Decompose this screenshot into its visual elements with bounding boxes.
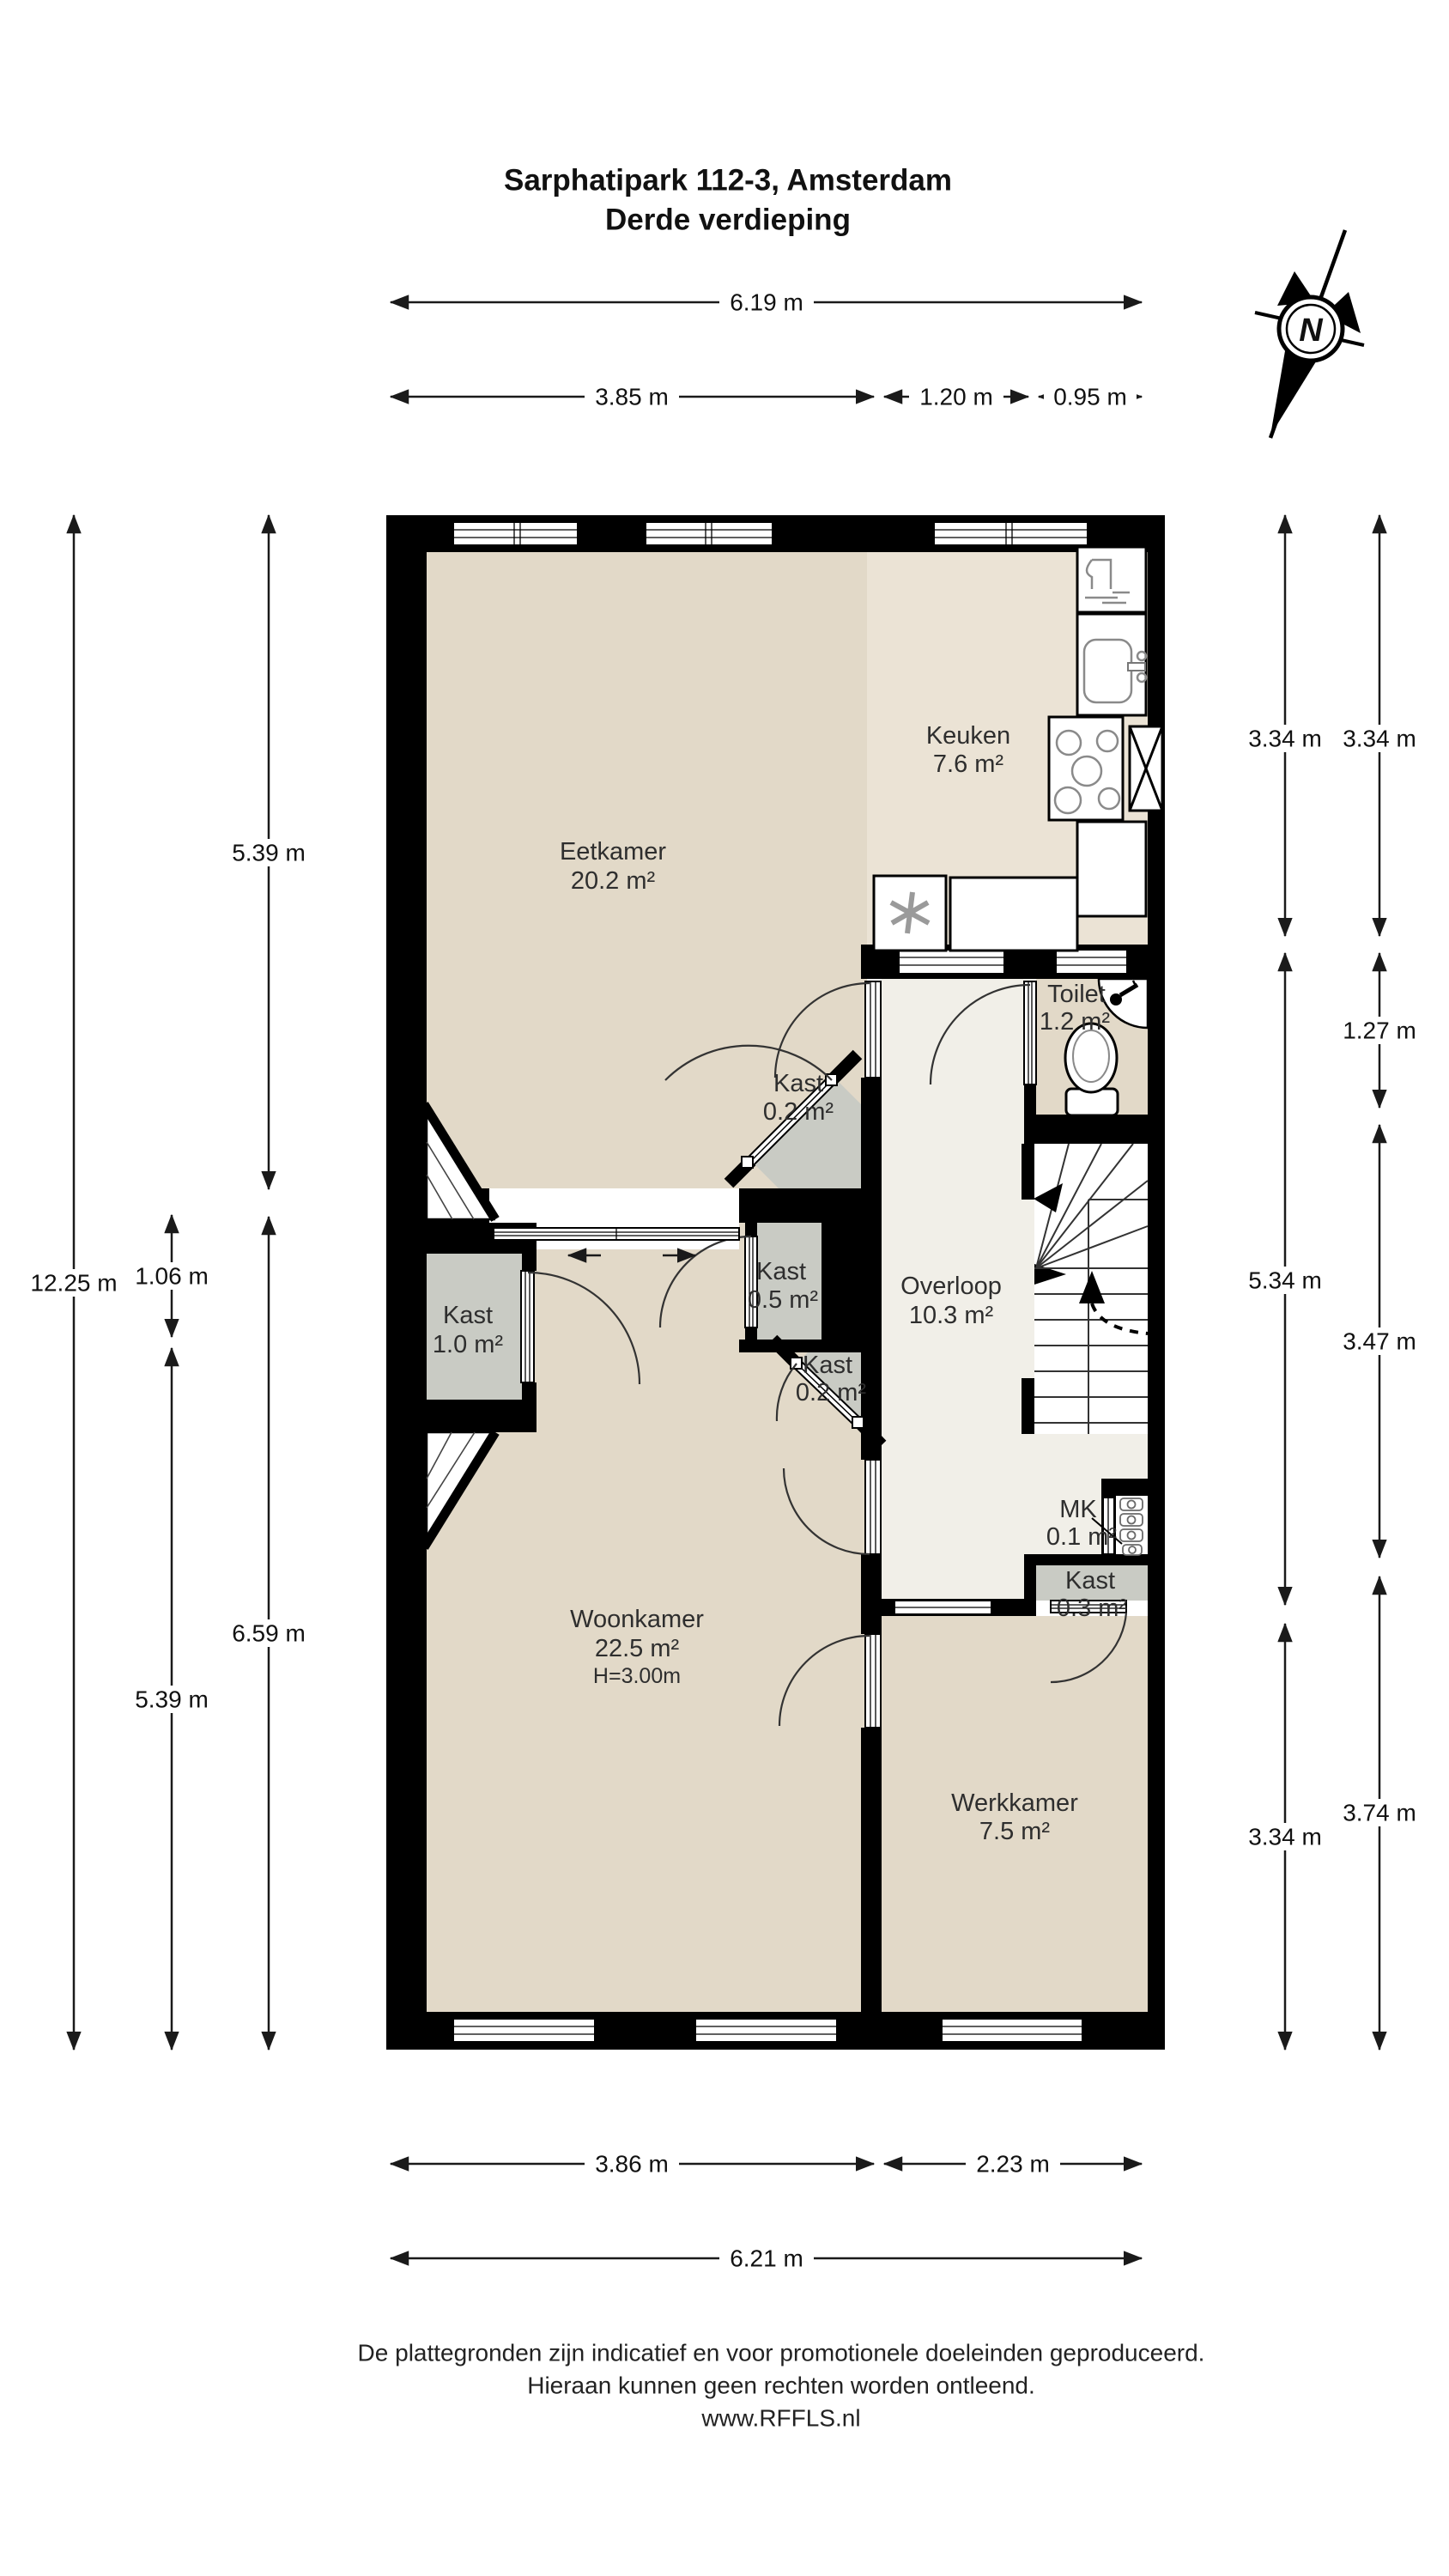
label-woonkamer-area: 22.5 m² (595, 1635, 680, 1662)
boiler-icon (1130, 726, 1162, 811)
svg-text:6.19 m: 6.19 m (730, 289, 803, 316)
svg-text:1.06 m: 1.06 m (135, 1263, 209, 1290)
footer-line-1: De plattegronden zijn indicatief en voor… (358, 2340, 1205, 2366)
label-toilet-area: 1.2 m² (1040, 1008, 1111, 1036)
label-overloop-area: 10.3 m² (909, 1302, 994, 1329)
svg-text:0.95 m: 0.95 m (1053, 384, 1127, 410)
window-bottom-woonkamer-2 (695, 2019, 837, 2042)
window-top-eetkamer-2 (646, 522, 773, 545)
label-woonkamer: Woonkamer (570, 1606, 704, 1633)
svg-text:2.23 m: 2.23 m (976, 2151, 1050, 2178)
window-toilet-transom (1056, 950, 1127, 974)
title-address: Sarphatipark 112-3, Amsterdam (504, 164, 952, 197)
svg-text:12.25 m: 12.25 m (30, 1270, 117, 1297)
label-kast-midden-area: 0.5 m² (748, 1286, 819, 1314)
footer-line-2: Hieraan kunnen geen rechten worden ontle… (527, 2372, 1035, 2399)
svg-text:6.59 m: 6.59 m (232, 1620, 306, 1647)
svg-text:3.86 m: 3.86 m (595, 2151, 669, 2178)
label-kast-klein-area: 0.3 m² (1057, 1595, 1128, 1622)
label-kast-klein: Kast (1065, 1567, 1115, 1595)
label-werkkamer-area: 7.5 m² (979, 1818, 1051, 1845)
label-woonkamer-height: H=3.00m (593, 1664, 681, 1688)
label-toilet: Toilet (1047, 981, 1106, 1008)
washer-fan-icon (874, 876, 946, 951)
floorplan-canvas: Sarphatipark 112-3, Amsterdam Derde verd… (0, 0, 1449, 2576)
compass-n-label: N (1299, 313, 1324, 349)
window-top-keuken (934, 522, 1088, 545)
window-werkkamer-interior (894, 1601, 991, 1614)
svg-text:3.34 m: 3.34 m (1248, 726, 1322, 752)
label-kast-onder-area: 0.2 m² (796, 1379, 867, 1406)
svg-text:1.27 m: 1.27 m (1343, 1018, 1416, 1044)
label-eetkamer-area: 20.2 m² (571, 867, 656, 895)
svg-text:1.20 m: 1.20 m (919, 384, 993, 410)
label-overloop: Overloop (900, 1273, 1002, 1300)
window-bottom-werkkamer (942, 2019, 1082, 2042)
label-werkkamer: Werkkamer (951, 1789, 1078, 1817)
window-bottom-woonkamer-1 (453, 2019, 595, 2042)
label-kast-links-area: 1.0 m² (433, 1331, 504, 1358)
label-kast-boven-area: 0.2 m² (763, 1098, 834, 1126)
dishwasher-icon (1077, 547, 1146, 612)
label-kast-boven: Kast (773, 1070, 823, 1097)
label-kast-midden: Kast (756, 1258, 806, 1285)
sink-icon (1077, 614, 1146, 715)
kitchen-counter (950, 878, 1077, 951)
svg-text:5.39 m: 5.39 m (135, 1686, 209, 1713)
label-meterkast-area: 0.1 m² (1046, 1523, 1118, 1551)
label-eetkamer: Eetkamer (560, 838, 666, 866)
svg-text:3.34 m: 3.34 m (1343, 726, 1416, 752)
label-meterkast: MK (1059, 1496, 1097, 1523)
svg-text:3.85 m: 3.85 m (595, 384, 669, 410)
label-keuken: Keuken (926, 722, 1010, 750)
toilet-icon (1065, 1024, 1118, 1115)
kitchen-unit (1077, 822, 1146, 916)
svg-text:3.34 m: 3.34 m (1248, 1824, 1322, 1850)
svg-text:6.21 m: 6.21 m (730, 2245, 803, 2272)
stove-icon (1049, 717, 1123, 820)
label-keuken-area: 7.6 m² (933, 750, 1004, 778)
dimension-top-right: 0.95 m (1039, 383, 1142, 410)
title-floor: Derde verdieping (605, 204, 851, 237)
svg-text:3.74 m: 3.74 m (1343, 1800, 1416, 1826)
svg-text:5.39 m: 5.39 m (232, 840, 306, 866)
svg-text:5.34 m: 5.34 m (1248, 1267, 1322, 1294)
window-hall-transom (899, 950, 1004, 974)
window-top-eetkamer-1 (453, 522, 578, 545)
label-kast-links: Kast (443, 1302, 493, 1329)
label-kast-onder: Kast (803, 1352, 852, 1379)
svg-text:3.47 m: 3.47 m (1343, 1328, 1416, 1355)
footer-website: www.RFFLS.nl (700, 2405, 860, 2432)
